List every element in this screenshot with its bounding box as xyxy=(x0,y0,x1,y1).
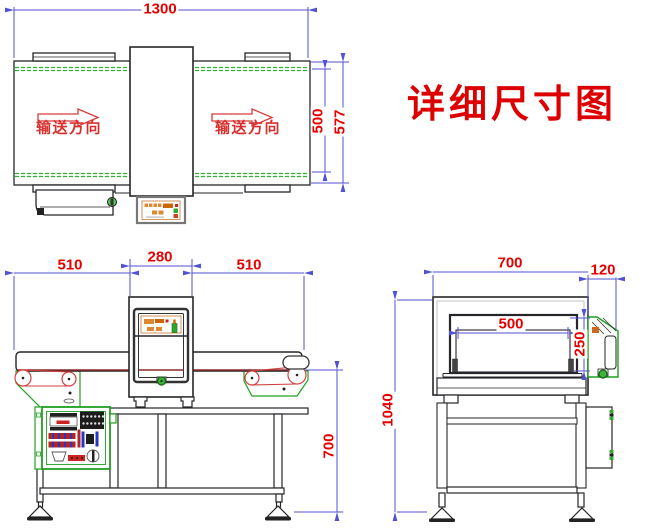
detector-head-front xyxy=(129,297,194,407)
dim-side-tunnel-width: 500 xyxy=(496,317,525,332)
motor-bracket xyxy=(36,190,117,215)
dim-front-infeed-length: 510 xyxy=(55,258,84,273)
dim-top-frame-width: 577 xyxy=(333,107,348,136)
detector-head-side xyxy=(433,297,588,403)
control-cabinet xyxy=(35,407,116,469)
conveyor-direction-label-right: 输送方向 xyxy=(215,117,281,138)
dim-top-belt-width: 500 xyxy=(311,106,326,135)
drawing-title: 详细尺寸图 xyxy=(407,86,617,124)
machine-legs-side xyxy=(429,403,595,522)
dim-side-tunnel-height: 250 xyxy=(573,329,588,358)
dim-side-overall-height: 1040 xyxy=(381,391,396,428)
control-panel-top xyxy=(137,197,185,223)
dim-front-outfeed-length: 510 xyxy=(234,258,263,273)
side-unit xyxy=(588,317,618,378)
electrical-box-side xyxy=(586,407,614,468)
detector-head-top xyxy=(130,47,193,223)
dim-side-machine-width: 700 xyxy=(495,256,524,271)
dim-front-belt-height: 700 xyxy=(322,431,337,460)
dim-front-detector-width: 280 xyxy=(145,250,174,265)
dim-top-overall-length: 1300 xyxy=(141,2,178,17)
side-knob-icon xyxy=(599,370,607,378)
dim-side-unit-width: 120 xyxy=(588,263,617,278)
bottle-icon xyxy=(172,324,177,333)
head-display-panel xyxy=(141,316,181,333)
conveyor-direction-label-left: 输送方向 xyxy=(36,117,102,138)
technical-drawing-canvas: 详细尺寸图 输送方向 输送方向 1300 500 577 510 280 510… xyxy=(0,0,650,530)
front-view-drawing xyxy=(15,297,309,521)
